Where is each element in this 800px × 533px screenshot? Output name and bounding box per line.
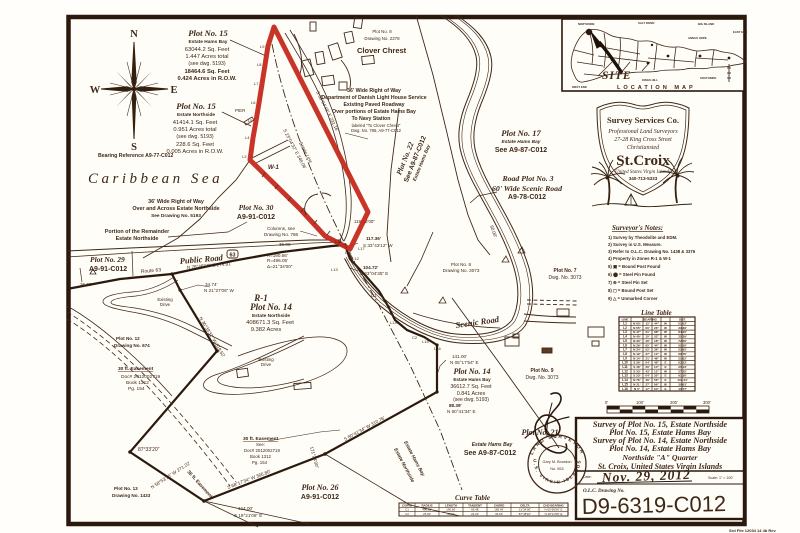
svg-text:Scale: 1" = 100': Scale: 1" = 100' (708, 476, 733, 480)
svg-text:W: W (664, 382, 667, 386)
svg-text:Line Table: Line Table (640, 309, 672, 317)
svg-text:7) ⊕ = Steel Pin Set: 7) ⊕ = Steel Pin Set (608, 280, 648, 285)
svg-text:E: E (664, 387, 666, 391)
svg-text:Dwg. No. 3073: Dwg. No. 3073 (525, 375, 558, 381)
svg-text:N: N (130, 29, 138, 40)
svg-text:Department of Danish Light Hou: Department of Danish Light House Service (321, 95, 426, 101)
svg-text:L4: L4 (245, 135, 250, 140)
svg-text:N 24°: N 24° (633, 348, 642, 352)
svg-text:0': 0' (605, 400, 608, 405)
svg-text:25.13': 25.13' (678, 365, 687, 369)
svg-text:Drawing No. 786: Drawing No. 786 (264, 232, 299, 237)
svg-text:Professional Land Surveyors: Professional Land Surveyors (607, 128, 678, 135)
svg-text:(see dwg. 5193): (see dwg. 5193) (188, 61, 225, 67)
svg-text:36' Wide Right of Way: 36' Wide Right of Way (347, 88, 401, 94)
svg-text:340-713-5333: 340-713-5333 (629, 176, 658, 181)
svg-text:228.6 Sq. Feet: 228.6 Sq. Feet (176, 142, 214, 148)
svg-text:Plot No. 7: Plot No. 7 (553, 268, 576, 274)
svg-text:21': 21' (645, 356, 649, 360)
svg-text:Doc# 2012002719: Doc# 2012002719 (121, 374, 161, 380)
svg-text:9.382 Acres: 9.382 Acres (251, 327, 282, 333)
svg-text:12': 12' (645, 322, 649, 326)
svg-text:(see dwg. 5193): (see dwg. 5193) (176, 134, 213, 140)
svg-text:Christiansted: Christiansted (627, 145, 660, 151)
svg-text:EAST END: EAST END (733, 30, 747, 34)
svg-text:N 33°: N 33° (633, 339, 642, 343)
svg-text:41414.1 Sq. Feet: 41414.1 Sq. Feet (173, 120, 218, 126)
svg-text:W: W (664, 330, 667, 334)
svg-text:L13: L13 (331, 267, 338, 272)
svg-text:N 14°: N 14° (633, 356, 642, 360)
svg-text:N 21°27'06" W: N 21°27'06" W (204, 288, 235, 293)
svg-text:Plot No. 15: Plot No. 15 (188, 28, 228, 38)
svg-text:87°48'10": 87°48'10" (519, 512, 531, 516)
svg-text:A9-91-C012: A9-91-C012 (301, 494, 339, 501)
svg-text:W: W (664, 356, 667, 360)
svg-text:Drive: Drive (261, 362, 272, 367)
svg-text:SITE: SITE (602, 70, 632, 82)
svg-text:25.00': 25.00' (423, 512, 431, 516)
svg-text:Existing Paved Roadway: Existing Paved Roadway (343, 102, 404, 108)
svg-text:L5: L5 (623, 339, 627, 343)
svg-text:0.424 Acres in R.O.W.: 0.424 Acres in R.O.W. (177, 76, 236, 82)
svg-text:No. 553: No. 553 (550, 467, 563, 471)
svg-text:W: W (664, 348, 667, 352)
svg-text:34.63': 34.63' (495, 512, 503, 516)
svg-text:Estate Hams Bay: Estate Hams Bay (502, 139, 541, 145)
svg-text:21': 21' (645, 330, 649, 334)
svg-text:3) Refer to O.L.C. Drawing No.: 3) Refer to O.L.C. Drawing No. 1438 & 33… (608, 249, 696, 254)
svg-text:84.40': 84.40' (678, 330, 687, 334)
svg-text:27': 27' (645, 382, 649, 386)
svg-text:L11: L11 (622, 365, 628, 369)
svg-text:E: E (170, 85, 177, 96)
svg-text:72.66': 72.66' (678, 339, 687, 343)
svg-text:300': 300' (703, 400, 711, 405)
svg-text:NORTHSIDE: NORTHSIDE (578, 22, 595, 26)
svg-text:40.77': 40.77' (678, 387, 687, 391)
svg-text:04': 04' (645, 374, 649, 378)
svg-text:36' Wide Right of Way: 36' Wide Right of Way (148, 199, 204, 205)
svg-text:United States Virgin Islands: United States Virgin Islands (615, 170, 671, 175)
svg-text:Curve Table: Curve Table (455, 494, 490, 502)
svg-text:8) ◻ = Bound Post Set: 8) ◻ = Bound Post Set (608, 288, 654, 293)
svg-text:Plot No. 12: Plot No. 12 (116, 336, 140, 341)
svg-text:D9-6319-C012: D9-6319-C012 (582, 491, 727, 519)
svg-text:Estate Hams Bay: Estate Hams Bay (472, 442, 513, 448)
svg-text:35": 35" (654, 374, 659, 378)
svg-text:See:: See: (256, 442, 265, 447)
svg-text:Book 1312: Book 1312 (250, 454, 272, 459)
svg-text:38.31': 38.31' (447, 512, 455, 516)
svg-text:SALT RIVER: SALT RIVER (638, 21, 654, 25)
svg-text:100': 100' (636, 400, 644, 405)
svg-text:L1: L1 (623, 322, 627, 326)
svg-text:Srd File 12034 14 4b Rev: Srd File 12034 14 4b Rev (729, 528, 776, 533)
svg-text:36612.7 Sq. Feet: 36612.7 Sq. Feet (450, 384, 492, 390)
svg-text:Drawing No. 674: Drawing No. 674 (114, 343, 150, 348)
svg-text:Estate Hams Bay: Estate Hams Bay (453, 377, 491, 382)
svg-text:LOCATION MAP: LOCATION MAP (617, 85, 696, 91)
svg-text:1) Survey by Theodolite and ED: 1) Survey by Theodolite and EDM. (608, 235, 677, 240)
svg-text:52': 52' (645, 348, 649, 352)
svg-text:27-28 King Cross Street: 27-28 King Cross Street (614, 137, 672, 143)
svg-text:1.447 Acres total: 1.447 Acres total (185, 54, 228, 60)
svg-text:L3: L3 (242, 154, 247, 159)
svg-text:06": 06" (654, 382, 659, 386)
svg-text:Clover Chrest: Clover Chrest (357, 46, 407, 55)
svg-text:Book 1312: Book 1312 (126, 380, 149, 386)
svg-text:Dwg. No. 786, A9-77-C012: Dwg. No. 786, A9-77-C012 (351, 128, 402, 133)
svg-text:C2: C2 (405, 512, 409, 516)
svg-text:Plot No. 14: Plot No. 14 (250, 302, 292, 312)
svg-text:N 60°41'34" E: N 60°41'34" E (447, 409, 476, 414)
svg-text:24.23': 24.23' (471, 512, 479, 516)
svg-text:L11: L11 (345, 250, 352, 255)
svg-text:Plot No. 30: Plot No. 30 (239, 203, 274, 212)
svg-text:08": 08" (654, 330, 659, 334)
svg-text:36": 36" (654, 348, 659, 352)
svg-text:26': 26' (645, 365, 649, 369)
svg-text:Survey Services Co.: Survey Services Co. (607, 115, 679, 125)
svg-text:E: E (664, 374, 666, 378)
svg-text:30 ft. Easement: 30 ft. Easement (118, 366, 154, 372)
svg-text:ANNAS HOPE: ANNAS HOPE (688, 36, 707, 40)
svg-text:L15: L15 (622, 382, 628, 386)
svg-text:Pg. 154: Pg. 154 (252, 460, 268, 465)
svg-text:Plot No. 8: Plot No. 8 (372, 29, 392, 34)
svg-text:Over portions of Estate Hams B: Over portions of Estate Hams Bay (332, 109, 416, 115)
svg-text:N 05°17'54" E: N 05°17'54" E (450, 360, 479, 365)
svg-text:C2: C2 (412, 335, 418, 340)
svg-text:To Navy Station: To Navy Station (352, 116, 391, 122)
svg-text:9) △ = Unmarked Corner: 9) △ = Unmarked Corner (608, 296, 658, 301)
svg-text:Plot No. 15: Plot No. 15 (176, 101, 216, 111)
svg-text:L17: L17 (358, 246, 365, 251)
svg-text:Estate Northside: Estate Northside (252, 313, 290, 319)
svg-text:141.00': 141.00' (452, 354, 467, 359)
svg-text:48": 48" (654, 356, 659, 360)
svg-text:18464.6 Sq. Feet: 18464.6 Sq. Feet (184, 69, 229, 75)
svg-text:L10: L10 (335, 239, 342, 244)
svg-text:N 21°: N 21° (633, 382, 642, 386)
svg-text:L7: L7 (623, 348, 627, 352)
svg-text:S: S (131, 142, 137, 153)
svg-text:S 19°21'06" E: S 19°21'06" E (234, 513, 262, 518)
svg-text:Dwg. No. 3073: Dwg. No. 3073 (548, 275, 581, 281)
svg-text:408671.3 Sq. Feet: 408671.3 Sq. Feet (246, 320, 294, 326)
svg-text:61.30': 61.30' (678, 374, 687, 378)
svg-text:N 63°: N 63° (633, 322, 642, 326)
svg-text:C1: C1 (371, 293, 377, 298)
svg-text:21.82': 21.82' (678, 356, 687, 360)
svg-text:Columns, see: Columns, see (267, 226, 296, 231)
svg-text:Pg. 154: Pg. 154 (128, 386, 145, 392)
svg-text:Portion of the Remainder: Portion of the Remainder (105, 229, 170, 235)
svg-text:L16: L16 (434, 346, 441, 351)
svg-text:40': 40' (645, 339, 649, 343)
svg-text:L12: L12 (352, 256, 359, 261)
svg-text:Plot No. 8: Plot No. 8 (451, 262, 472, 267)
svg-text:Northside "A" Quarter: Northside "A" Quarter (622, 453, 699, 462)
svg-text:Plot No. 9: Plot No. 9 (530, 368, 553, 374)
svg-text:54": 54" (654, 387, 659, 391)
svg-text:L5: L5 (248, 118, 253, 123)
svg-text:Date:: Date: (583, 475, 592, 479)
svg-text:R=496.05': R=496.05' (267, 258, 288, 263)
svg-text:See A9-87-C012: See A9-87-C012 (495, 147, 547, 154)
svg-text:Plot No. 29: Plot No. 29 (90, 255, 125, 264)
svg-text:PIER: PIER (235, 108, 245, 113)
svg-text:88.39': 88.39' (449, 403, 462, 408)
svg-text:Drive: Drive (160, 302, 171, 307)
svg-text:Road Plot No. 3: Road Plot No. 3 (501, 174, 553, 183)
svg-text:N 47°: N 47° (633, 330, 642, 334)
svg-text:Plot No. 14: Plot No. 14 (453, 367, 490, 376)
svg-text:See Drawing No. 5193: See Drawing No. 5193 (151, 213, 201, 219)
svg-text:L8: L8 (257, 62, 262, 67)
svg-text:87°33'20": 87°33'20" (138, 447, 160, 453)
svg-text:124.00': 124.00' (238, 506, 253, 511)
svg-text:BIG ISLAND: BIG ISLAND (698, 22, 714, 26)
svg-text:36.00': 36.00' (80, 282, 92, 287)
svg-text:E: E (664, 365, 666, 369)
svg-text:S 46°: S 46° (633, 365, 641, 369)
svg-text:W: W (664, 339, 667, 343)
svg-text:2) Survey in U.S. Measure.: 2) Survey in U.S. Measure. (608, 242, 662, 247)
svg-text:Drawing No. 2278: Drawing No. 2278 (364, 36, 400, 41)
svg-text:0.005 Acres in R.O.W.: 0.005 Acres in R.O.W. (166, 149, 223, 155)
svg-text:117.36': 117.36' (366, 236, 381, 241)
svg-text:63044.2 Sq. Feet: 63044.2 Sq. Feet (185, 47, 230, 53)
svg-text:L9: L9 (623, 356, 627, 360)
svg-text:17': 17' (645, 387, 649, 391)
svg-text:L14: L14 (390, 320, 397, 325)
svg-text:See A9-87-C012: See A9-87-C012 (464, 450, 516, 457)
svg-text:SOUTHSIDE: SOUTHSIDE (700, 76, 716, 80)
svg-text:Gary M. Bourdon: Gary M. Bourdon (543, 460, 572, 464)
svg-text:23.92': 23.92' (678, 348, 687, 352)
svg-text:44": 44" (654, 322, 659, 326)
svg-text:L7: L7 (254, 81, 259, 86)
svg-text:36.00: 36.00 (279, 242, 291, 247)
svg-text:Caribbean Sea: Caribbean Sea (88, 171, 223, 187)
svg-text:L16: L16 (622, 387, 628, 391)
svg-text:30.63': 30.63' (678, 382, 687, 386)
svg-text:Estate Northside: Estate Northside (177, 112, 215, 118)
svg-text:Bearing Reference A9-77-C012: Bearing Reference A9-77-C012 (98, 153, 173, 159)
svg-text:S 23°04'35" E: S 23°04'35" E (360, 271, 388, 276)
svg-text:Plot No. 17: Plot No. 17 (501, 128, 541, 138)
svg-text:(see dwg. 5193): (see dwg. 5193) (453, 397, 489, 403)
svg-text:200': 200' (670, 400, 678, 405)
svg-text:L3: L3 (623, 330, 627, 334)
svg-text:L13: L13 (622, 374, 628, 378)
svg-text:N 5°: N 5° (634, 387, 641, 391)
svg-text:Plot No. 14, Estate Hams Bay: Plot No. 14, Estate Hams Bay (609, 444, 711, 453)
svg-text:L15: L15 (422, 339, 429, 344)
svg-text:WEST END: WEST END (572, 85, 587, 89)
svg-text:Δ=21°34'00": Δ=21°34'00" (267, 264, 293, 269)
svg-text:W-1: W-1 (268, 165, 279, 171)
svg-text:Estate Hams Bay: Estate Hams Bay (189, 39, 228, 45)
svg-text:51.03': 51.03' (678, 322, 687, 326)
svg-text:N 49°11'59" E: N 49°11'59" E (545, 512, 563, 516)
svg-text:KINGS HILL: KINGS HILL (642, 78, 658, 82)
svg-text:A9-78-C012: A9-78-C012 (508, 194, 546, 201)
svg-text:Surveyor's Notes:: Surveyor's Notes: (612, 224, 663, 232)
svg-text:63: 63 (230, 253, 236, 259)
svg-text:5) ▣ = Bound Post Found: 5) ▣ = Bound Post Found (608, 264, 661, 269)
svg-text:0.951 Acres total: 0.951 Acres total (173, 127, 216, 133)
svg-text:Drawing No. 3073: Drawing No. 3073 (443, 268, 480, 273)
svg-text:14": 14" (654, 365, 659, 369)
svg-text:A9-91-C012: A9-91-C012 (237, 214, 275, 221)
svg-text:W: W (664, 322, 667, 326)
svg-text:W: W (90, 85, 101, 96)
svg-text:Plot No. 26: Plot No. 26 (301, 483, 338, 492)
svg-text:St.Croix: St.Croix (616, 153, 670, 169)
svg-text:18": 18" (654, 339, 659, 343)
svg-text:60' Wide Scenic Road: 60' Wide Scenic Road (492, 184, 562, 193)
svg-text:L6: L6 (251, 100, 256, 105)
svg-text:L9: L9 (260, 44, 265, 49)
svg-text:Plot No. 13: Plot No. 13 (114, 486, 138, 491)
svg-text:4) Property in Zones R-1 & W-1: 4) Property in Zones R-1 & W-1 (608, 256, 672, 261)
svg-text:Drawing No. 1433: Drawing No. 1433 (112, 493, 151, 498)
svg-text:104.72': 104.72' (363, 265, 378, 270)
svg-text:S 23°: S 23° (633, 374, 641, 378)
svg-text:Doc# 2012002719: Doc# 2012002719 (244, 448, 280, 453)
svg-text:Estate Northside: Estate Northside (116, 236, 159, 242)
